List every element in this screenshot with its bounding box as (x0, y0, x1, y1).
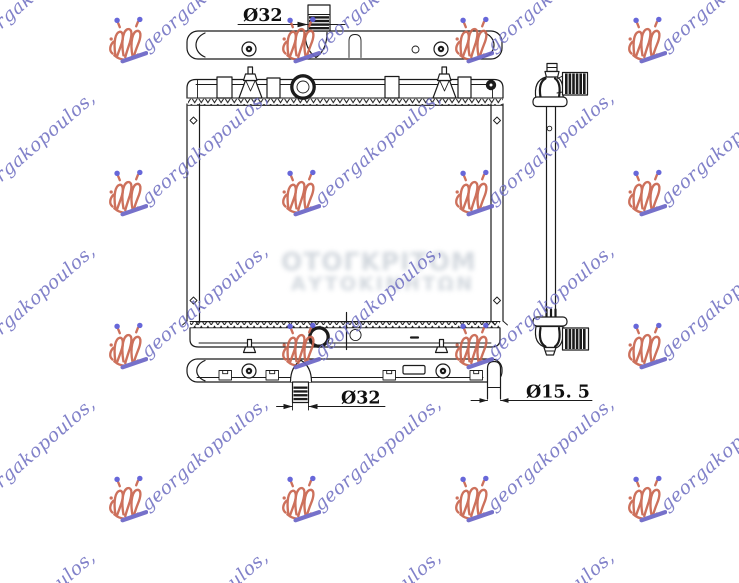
side-top-hose-connector (563, 73, 588, 96)
dimension-label-bottom-outlet: Ø32 (341, 389, 381, 409)
filler-neck (292, 76, 314, 98)
side-bottom-fitting (533, 310, 589, 356)
radiator-technical-drawing: Ø32 (0, 0, 739, 583)
bottom-outlet-pipe (291, 360, 312, 402)
radiator-core (200, 105, 492, 321)
radiator-side-view (533, 64, 589, 356)
top-view-bolt-hole (242, 42, 256, 56)
top-inlet-pipe (308, 5, 330, 31)
page-background: ΟΤΟΓΚΡΙΤΟΜ ΑΥΤΟΚΙΝΗΤΩΝ (0, 0, 739, 583)
bottom-mounting-pin (436, 340, 448, 353)
radiator-front-view (183, 67, 508, 353)
bottom-view-bolt-hole (436, 364, 450, 378)
top-mounting-pin (433, 67, 456, 98)
top-view-bolt-hole (434, 42, 448, 56)
bottom-view-slot (403, 366, 425, 375)
side-bottom-hose-connector (563, 328, 589, 350)
side-top-fitting (533, 64, 588, 107)
radiator-top-view: Ø32 (187, 5, 502, 59)
radiator-bottom-view: Ø32 Ø15. 5 (187, 359, 592, 410)
bottom-mounting-pin (244, 340, 256, 353)
bottom-outlet-ring (310, 328, 328, 346)
bottom-small-pipe (488, 362, 501, 400)
bottom-view-bolt-hole (242, 364, 256, 378)
dimension-label-top-inlet: Ø32 (243, 6, 283, 26)
core-top-fins (188, 99, 503, 105)
top-view-small-hole (412, 46, 419, 53)
core-bottom-fins (190, 322, 500, 328)
top-mounting-pin (239, 67, 262, 98)
drain-plug (350, 329, 361, 340)
dimension-label-small-pipe: Ø15. 5 (526, 383, 590, 403)
